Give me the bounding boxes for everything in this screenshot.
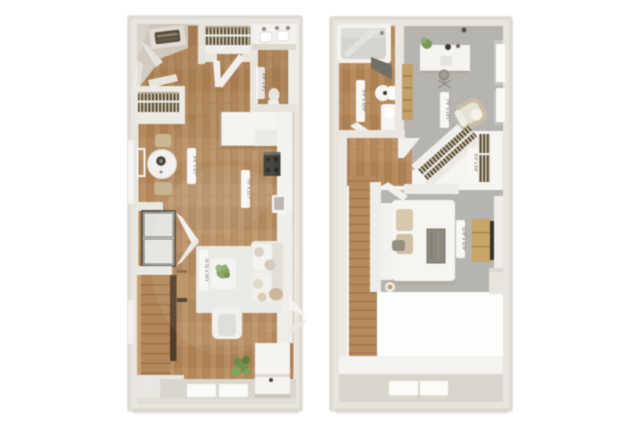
svg-text:5'3" x 5'9": 5'3" x 5'9": [474, 154, 479, 173]
svg-text:11'0" x 11'6": 11'0" x 11'6": [462, 227, 467, 251]
svg-text:7'6" x 13'1": 7'6" x 13'1": [446, 99, 451, 122]
svg-text:5'4" x 10'6": 5'4" x 10'6": [362, 90, 367, 113]
